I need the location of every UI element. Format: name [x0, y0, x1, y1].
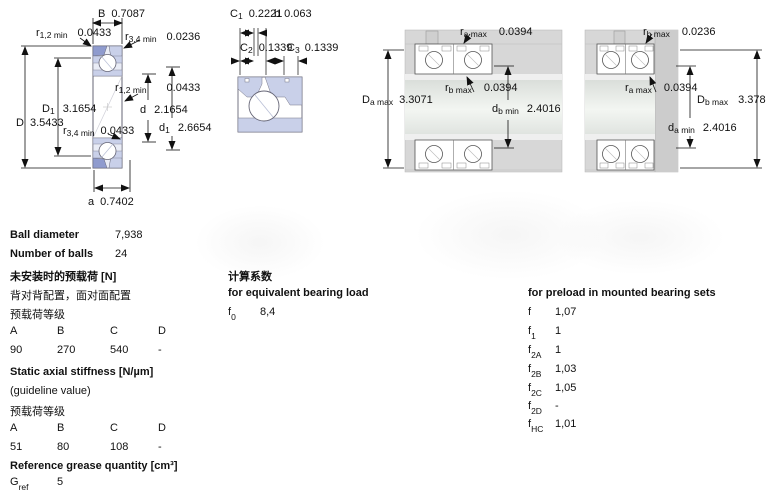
dim-da-min: da min2.4016 — [668, 122, 737, 134]
preload-col-header: A — [10, 325, 17, 337]
preload-col-header: C — [110, 325, 118, 337]
dim-db-min: db min2.4016 — [492, 103, 561, 115]
factor-value: 1,07 — [555, 306, 576, 318]
f0-value: 8,4 — [260, 306, 275, 318]
stiffness-col-header: C — [110, 422, 118, 434]
factor-value: 1 — [555, 325, 561, 337]
grease-gref-symbol: Gref — [10, 476, 28, 490]
dim-ra-max-shaft: ra max0.0394 — [625, 82, 697, 94]
dim-b: b0.063 — [274, 8, 312, 20]
dim-d: d2.1654 — [140, 104, 188, 116]
dim-r12-min-top: r1,2 min0.0433 — [36, 27, 111, 39]
factor-symbol: f — [528, 306, 531, 320]
dim-Da-max: Da max3.3071 — [362, 94, 433, 106]
preload-class-label: 预载荷等级 — [10, 306, 65, 322]
stiffness-value: 51 — [10, 441, 22, 453]
number-of-balls-label: Number of balls — [10, 248, 93, 260]
ball-diameter-value: 7,938 — [115, 229, 143, 241]
f0-symbol: f0 — [228, 306, 236, 320]
stiffness-class-label: 预载荷等级 — [10, 403, 65, 419]
dim-r34-min-top: r3,4 min0.0236 — [125, 31, 200, 43]
stiffness-section-title: Static axial stiffness [N/µm] — [10, 366, 153, 378]
number-of-balls-value: 24 — [115, 248, 127, 260]
preload-value: 540 — [110, 344, 128, 356]
grease-gref-value: 5 — [57, 476, 63, 488]
dim-rb-max-shaft: rb max0.0236 — [643, 26, 715, 38]
stiffness-col-header: A — [10, 422, 17, 434]
factor-value: 1,03 — [555, 363, 576, 375]
dim-D: D3.5433 — [16, 117, 64, 129]
preload-col-header: D — [158, 325, 166, 337]
bearing-datasheet-page: B0.7087 r1,2 min0.0433 r3,4 min0.0236 r1… — [0, 0, 775, 494]
stiffness-col-header: D — [158, 422, 166, 434]
stiffness-value: - — [158, 441, 162, 453]
grease-section-title: Reference grease quantity [cm³] — [10, 460, 178, 472]
factor-value: 1,05 — [555, 382, 576, 394]
dim-a: a0.7402 — [88, 196, 134, 208]
preload-value: - — [158, 344, 162, 356]
factor-symbol: f2C — [528, 382, 542, 396]
dim-C3: C30.1339 — [287, 42, 338, 54]
factor-value: - — [555, 400, 559, 412]
dim-r12-min-inner: r1,2 min0.0433 — [115, 82, 200, 94]
factor-symbol: fHC — [528, 418, 543, 432]
factor-symbol: f1 — [528, 325, 536, 339]
stiffness-value: 108 — [110, 441, 128, 453]
factor-value: 1 — [555, 344, 561, 356]
factor-symbol: f2D — [528, 400, 542, 414]
preload-value: 270 — [57, 344, 75, 356]
factor-symbol: f2A — [528, 344, 541, 358]
dim-D1: D13.1654 — [42, 103, 96, 115]
preload-factors-title: for preload in mounted bearing sets — [528, 287, 716, 299]
preload-col-header: B — [57, 325, 64, 337]
dim-rb-max-housing: rb max0.0394 — [445, 82, 517, 94]
preload-config-subtitle: 背对背配置，面对面配置 — [10, 287, 131, 303]
dim-d1: d12.6654 — [159, 122, 212, 134]
preload-value: 90 — [10, 344, 22, 356]
factor-symbol: f2B — [528, 363, 541, 377]
calc-section-title: 计算系数 — [228, 268, 272, 284]
dim-r34-min-inner: r3,4 min0.0433 — [63, 125, 134, 137]
stiffness-col-header: B — [57, 422, 64, 434]
ball-diameter-label: Ball diameter — [10, 229, 79, 241]
dim-ra-max-housing: ra max0.0394 — [460, 26, 532, 38]
stiffness-guideline-note: (guideline value) — [10, 385, 91, 397]
stiffness-value: 80 — [57, 441, 69, 453]
dim-C2: C20.1339 — [240, 42, 292, 54]
preload-section-title: 未安装时的预载荷 [N] — [10, 268, 116, 284]
dim-B: B0.7087 — [98, 8, 145, 20]
calc-subtitle: for equivalent bearing load — [228, 287, 369, 299]
dim-Db-max: Db max3.378 — [697, 94, 766, 106]
factor-value: 1,01 — [555, 418, 576, 430]
